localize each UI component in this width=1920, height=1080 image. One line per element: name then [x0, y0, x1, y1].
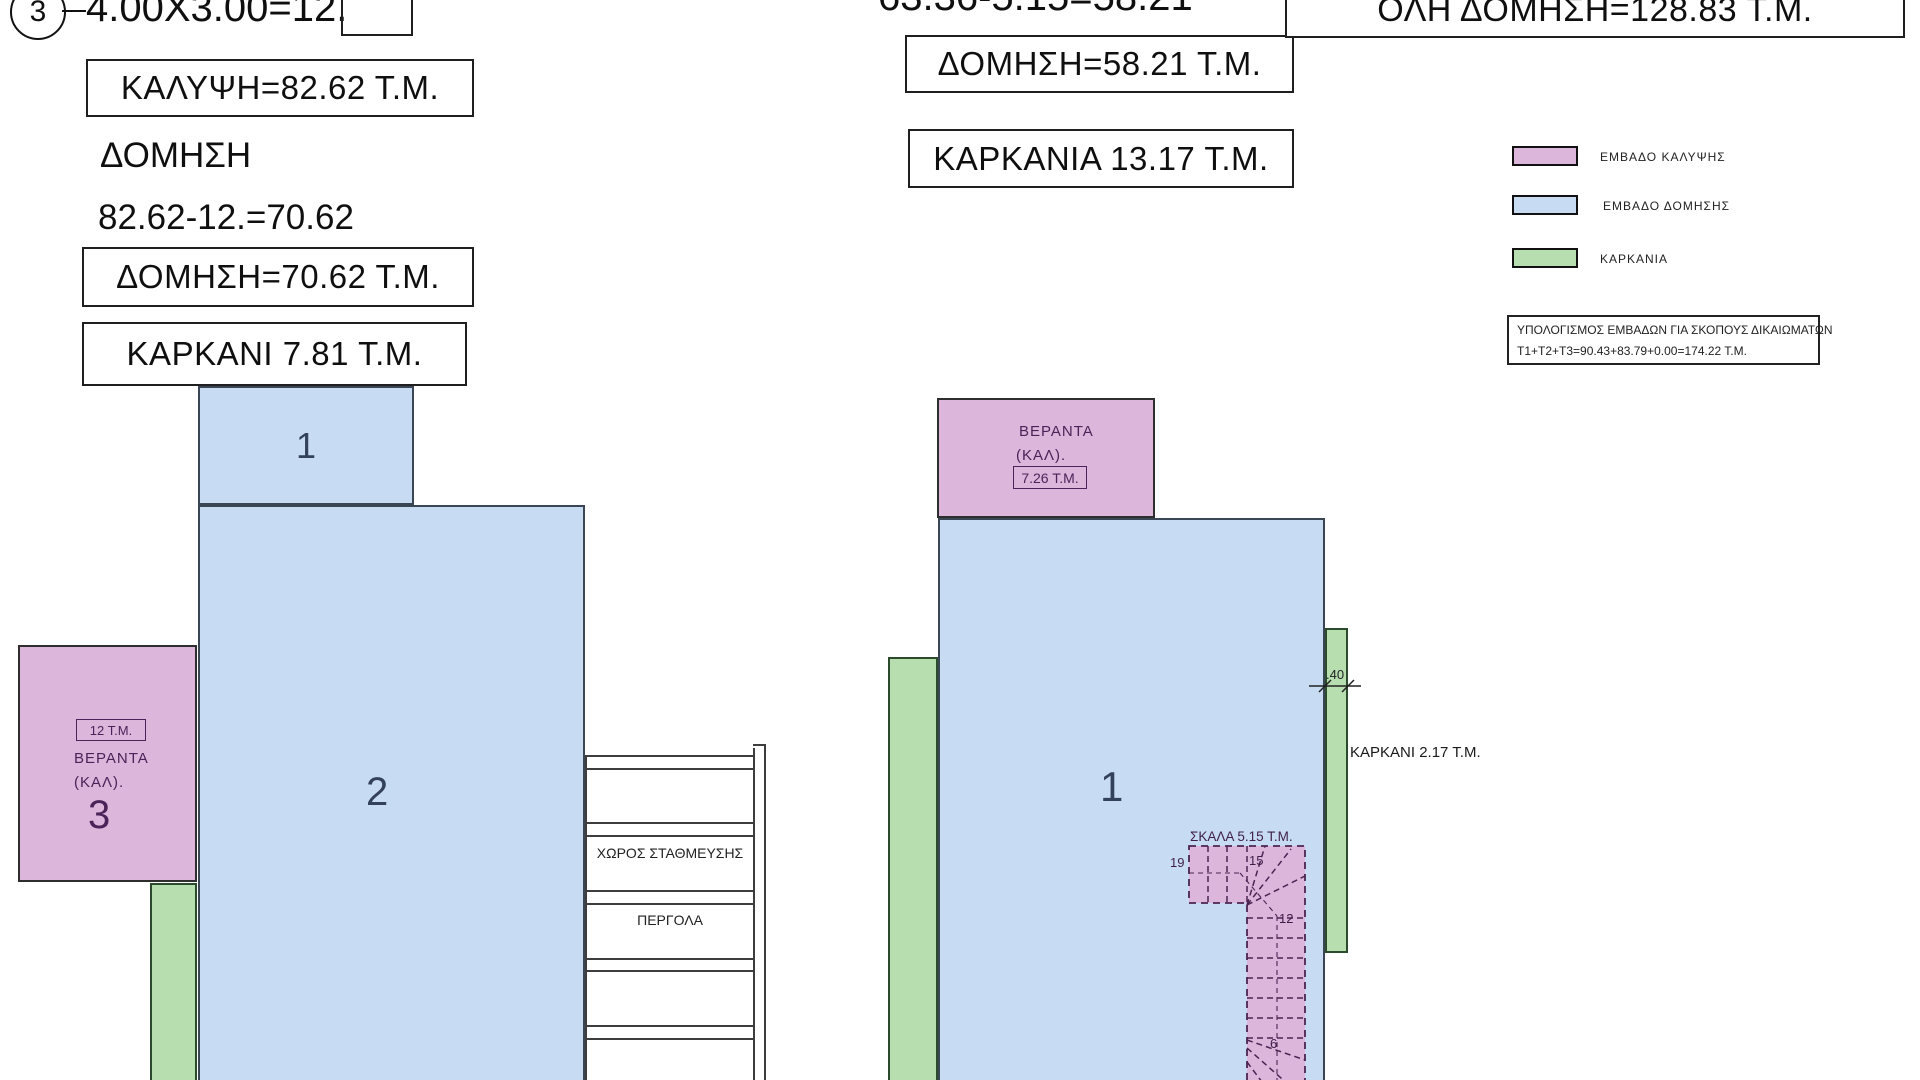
right-plan-karkania-strip-left: [888, 657, 938, 1080]
domisi2-total-text: ΔΟΜΗΣΗ=58.21 Τ.Μ.: [938, 45, 1262, 83]
rights-formula: Τ1+Τ2+Τ3=90.43+83.79+0.00=174.22 Τ.Μ.: [1517, 344, 1747, 358]
rights-title: ΥΠΟΛΟΓΙΣΜΟΣ ΕΜΒΑΔΩΝ ΓΙΑ ΣΚΟΠΟΥΣ ΔΙΚΑΙΩΜΑ…: [1517, 323, 1833, 337]
left-veranda-label: ΒΕΡΑΝΤΑ: [74, 750, 149, 767]
badge-leader-line: [62, 10, 86, 12]
karkani-total-text: ΚΑΡΚΑΝΙ 7.81 Τ.Μ.: [127, 335, 423, 373]
left-veranda-kal-label: (ΚΑΛ).: [74, 774, 124, 791]
karkani-total-box: ΚΑΡΚΑΝΙ 7.81 Τ.Μ.: [82, 322, 467, 386]
mid-top-formula: 63.36-5.15=58.21: [878, 0, 1193, 20]
parking-band-line: [585, 890, 755, 892]
left-plan-region-1: 1: [198, 386, 414, 505]
legend-label-domisi: ΕΜΒΑΔΟ ΔΟΜΗΣΗΣ: [1603, 199, 1730, 213]
right-plan-region-1-number: 1: [1100, 763, 1123, 811]
parking-label: ΧΩΡΟΣ ΣΤΑΘΜΕΥΣΗΣ: [586, 845, 754, 861]
dimension-40: .40: [1305, 653, 1365, 698]
left-plan-region-1-number: 1: [296, 425, 316, 467]
parking-right-wall-outer: [764, 744, 766, 1080]
parking-band-line: [585, 903, 755, 905]
floor-plan-sheet: 3 4.00X3.00=12. ΚΑΛΥΨΗ=82.62 Τ.Μ. ΔΟΜΗΣΗ…: [0, 0, 1920, 1080]
domisi-total-box: ΔΟΜΗΣΗ=70.62 Τ.Μ.: [82, 247, 474, 307]
left-plan-veranda-region-3: 12 Τ.Μ. ΒΕΡΑΝΤΑ (ΚΑΛ). 3: [18, 645, 197, 882]
parking-band-line: [585, 768, 755, 770]
karkania-total-box: ΚΑΡΚΑΝΙΑ 13.17 Τ.Μ.: [908, 129, 1294, 188]
legend-swatch-domisi: [1512, 195, 1578, 215]
left-veranda-area-text: 12 Τ.Μ.: [90, 723, 132, 738]
kalypsi-total-box: ΚΑΛΥΨΗ=82.62 Τ.Μ.: [86, 59, 474, 117]
left-plan-region-2: [198, 505, 585, 1080]
domisi2-total-box: ΔΟΜΗΣΗ=58.21 Τ.Μ.: [905, 35, 1294, 93]
parking-band-line: [585, 1038, 755, 1040]
oli-domisi-text: ΟΛΗ ΔΟΜΗΣΗ=128.83 Τ.Μ.: [1377, 0, 1813, 30]
parking-band-line: [585, 970, 755, 972]
left-plan-region-2-number: 2: [366, 770, 388, 815]
stair-step-6: 6: [1270, 1036, 1277, 1051]
parking-band-line: [585, 958, 755, 960]
unit3-badge: 3: [10, 0, 66, 40]
right-veranda-kal-label: (ΚΑΛ).: [1016, 447, 1066, 464]
parking-band-line: [585, 822, 755, 824]
left-veranda-area-box: 12 Τ.Μ.: [76, 719, 146, 741]
right-plan-veranda: ΒΕΡΑΝΤΑ (ΚΑΛ). 7.26 Τ.Μ.: [937, 398, 1155, 518]
left-plan-karkania-strip: [150, 883, 197, 1080]
right-veranda-area-box: 7.26 Τ.Μ.: [1013, 466, 1087, 489]
right-karkani-label: ΚΑΡΚΑΝΙ 2.17 Τ.Μ.: [1350, 744, 1481, 761]
stairs-title: ΣΚΑΛΑ 5.15 Τ.Μ.: [1190, 829, 1293, 844]
oli-domisi-box: ΟΛΗ ΔΟΜΗΣΗ=128.83 Τ.Μ.: [1285, 0, 1905, 38]
cropped-box-outline: [341, 0, 413, 36]
right-veranda-label: ΒΕΡΑΝΤΑ: [1019, 423, 1094, 440]
stair-step-19: 19: [1170, 855, 1184, 870]
unit3-badge-number: 3: [30, 0, 47, 29]
left-top-formula: 4.00X3.00=12.: [86, 0, 347, 31]
legend-swatch-kalypsi: [1512, 146, 1578, 166]
legend-swatch-karkania: [1512, 248, 1578, 268]
parking-band-line: [585, 755, 755, 757]
domisi-calc-line: 82.62-12.=70.62: [98, 198, 354, 238]
parking-wall-cap: [753, 744, 766, 746]
right-veranda-area-text: 7.26 Τ.Μ.: [1021, 470, 1078, 486]
left-plan-region-3-number: 3: [88, 793, 110, 838]
domisi-title: ΔΟΜΗΣΗ: [100, 136, 251, 176]
legend-label-kalypsi: ΕΜΒΑΔΟ ΚΑΛΥΨΗΣ: [1600, 150, 1726, 164]
parking-band-line: [585, 1025, 755, 1027]
stairs: ΣΚΑΛΑ 5.15 Τ.Μ. 19 15 12 6: [1160, 826, 1335, 1080]
parking-band-line: [585, 835, 755, 837]
domisi-total-text: ΔΟΜΗΣΗ=70.62 Τ.Μ.: [116, 258, 440, 296]
dimension-40-text: .40: [1326, 667, 1344, 682]
karkania-total-text: ΚΑΡΚΑΝΙΑ 13.17 Τ.Μ.: [933, 140, 1268, 178]
pergola-label: ΠΕΡΓΟΛΑ: [586, 912, 754, 928]
legend-label-karkania: ΚΑΡΚΑΝΙΑ: [1600, 252, 1668, 266]
rights-calculation-box: ΥΠΟΛΟΓΙΣΜΟΣ ΕΜΒΑΔΩΝ ΓΙΑ ΣΚΟΠΟΥΣ ΔΙΚΑΙΩΜΑ…: [1507, 315, 1820, 365]
stair-step-12: 12: [1279, 911, 1293, 926]
kalypsi-total-text: ΚΑΛΥΨΗ=82.62 Τ.Μ.: [121, 69, 439, 107]
stair-step-15: 15: [1249, 853, 1263, 868]
